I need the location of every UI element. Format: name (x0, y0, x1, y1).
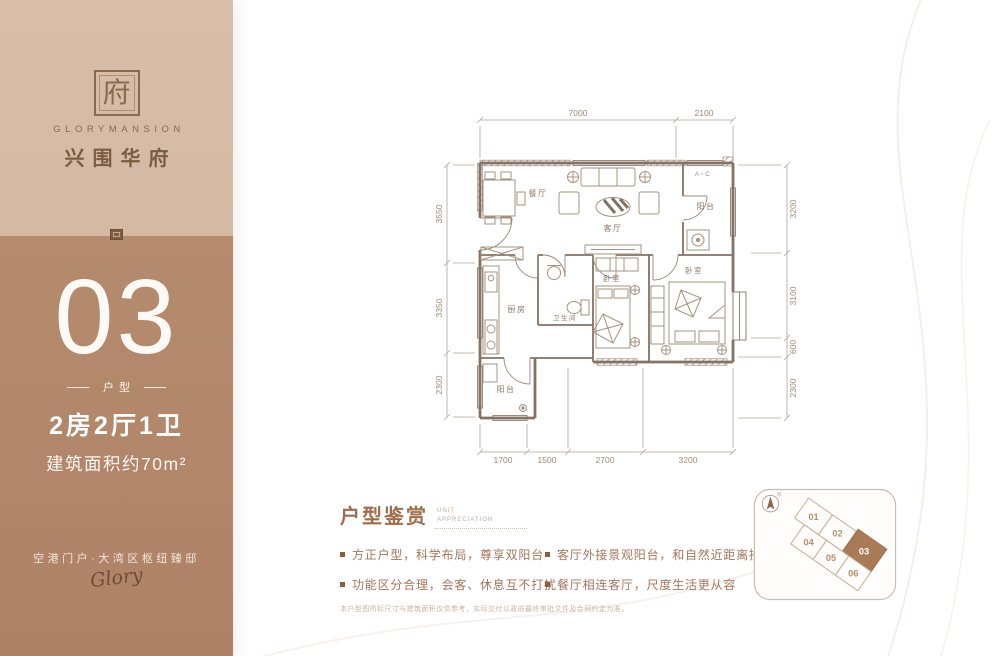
selling-points: 方正户型，科学布局，尊享双阳台 功能区分合理，会客、休息互不打扰 客厅外接景观阳… (340, 546, 775, 593)
keyplan-unit-label: 06 (848, 569, 858, 579)
dining-furniture (481, 172, 525, 260)
bullet-marker-icon (340, 552, 345, 557)
label-ac-unit: A~C (695, 172, 711, 178)
balcony-top-furniture (687, 230, 709, 250)
brand-name-cn: 兴围华府 (0, 142, 233, 171)
subtitle-line2: APPRECIATION (437, 516, 493, 525)
bedroom-small-furniture (593, 258, 640, 348)
dim-top-7000: 7000 (569, 108, 588, 118)
appreciation-header: 户型鉴赏 UNIT APPRECIATION (340, 500, 775, 529)
keyplan-unit-label: 02 (832, 529, 842, 539)
bullet-marker-icon (545, 582, 550, 587)
bullet-text: 功能区分合理，会客、休息互不打扰 (352, 576, 557, 593)
seal-mark-icon (110, 229, 123, 240)
floorplan: 7000 2100 3550 3350 2300 3200 3100 600 2… (435, 100, 815, 480)
dim-right-2300: 2300 (788, 378, 798, 397)
dim-right-3200: 3200 (788, 199, 798, 218)
label-living: 客厅 (604, 223, 623, 233)
bullet-list-right: 客厅外接景观阳台，和自然近距离接触 餐厅相连客厅，尺度生活更从容 (545, 546, 775, 593)
dim-left-3350: 3350 (435, 298, 444, 317)
brand-seal-icon: 府 (94, 70, 140, 116)
section-title: 户型鉴赏 (340, 500, 428, 529)
unit-area: 建筑面积约70m² (0, 451, 233, 476)
label-bathroom: 卫生间 (553, 313, 577, 322)
dim-bottom-3200: 3200 (679, 455, 698, 465)
keyplan-unit-label: 04 (804, 537, 815, 547)
living-furniture (559, 168, 659, 254)
label-balcony-bottom: 阳台 (497, 384, 516, 394)
bullet-marker-icon (545, 552, 550, 557)
disclaimer-text: 本户型图所标尺寸与建筑面积仅供参考，实际交付以政府最终审批文件及合同约定为准。 (340, 604, 629, 614)
unit-panel: 03 户型 2房2厅1卫 建筑面积约70m² 空港门户·大湾区枢纽臻邸 Glor… (0, 236, 233, 656)
bullet-item: 客厅外接景观阳台，和自然近距离接触 (545, 546, 775, 563)
keyplan-unit-label: 05 (826, 553, 836, 563)
bullet-item: 功能区分合理，会客、休息互不打扰 (340, 576, 545, 593)
brand-seal-glyph: 府 (102, 79, 130, 107)
unit-type-label: 户型 (98, 379, 135, 395)
subtitle-line1: UNIT (437, 507, 493, 516)
bullet-text: 客厅外接景观阳台，和自然近距离接触 (557, 546, 775, 563)
bullet-item: 餐厅相连客厅，尺度生活更从容 (545, 576, 775, 593)
bedroom-master-furniture (651, 282, 727, 355)
keyplan-unit-label: 01 (808, 512, 818, 522)
bullet-text: 餐厅相连客厅，尺度生活更从容 (557, 576, 736, 593)
dim-top-2100: 2100 (695, 108, 714, 118)
keyplan-unit-label-highlighted: 03 (859, 547, 869, 557)
keyplan: N 01 02 03 04 05 06 (752, 487, 898, 602)
unit-type-divider: 户型 (0, 379, 233, 395)
dim-bottom-2700: 2700 (596, 455, 615, 465)
label-balcony-top: 阳台 (697, 201, 716, 211)
label-kitchen: 厨房 (508, 304, 527, 314)
bullet-marker-icon (340, 582, 345, 587)
unit-number: 03 (0, 236, 233, 370)
unit-layout: 2房2厅1卫 (0, 406, 233, 442)
bathroom-fixtures (547, 266, 589, 316)
kitchen-furniture (483, 266, 499, 354)
label-dining: 餐厅 (529, 189, 548, 198)
appreciation-section: 户型鉴赏 UNIT APPRECIATION 方正户型，科学布局，尊享双阳台 功… (340, 500, 775, 593)
brochure-page: 府 GLORYMANSION 兴围华府 03 户型 2房2厅1卫 建筑面积约70… (0, 0, 1000, 656)
north-label: N (777, 492, 781, 498)
divider-line-left (67, 387, 89, 388)
bullet-item: 方正户型，科学布局，尊享双阳台 (340, 546, 545, 563)
label-bedroom-master: 卧室 (685, 265, 703, 275)
dim-left-2300: 2300 (435, 375, 444, 394)
dim-left-3550: 3550 (435, 204, 444, 223)
dim-right-600: 600 (788, 340, 798, 354)
dim-right-3100: 3100 (788, 286, 798, 305)
sidebar: 府 GLORYMANSION 兴围华府 03 户型 2房2厅1卫 建筑面积约70… (0, 0, 233, 656)
brand-panel: 府 GLORYMANSION 兴围华府 (0, 0, 233, 236)
bullet-text: 方正户型，科学布局，尊享双阳台 (352, 546, 544, 563)
dim-bottom-1500: 1500 (538, 455, 557, 465)
section-subtitle: UNIT APPRECIATION (435, 507, 527, 529)
dim-bottom-1700: 1700 (494, 455, 513, 465)
brand-name-en: GLORYMANSION (0, 124, 233, 135)
bullet-list-left: 方正户型，科学布局，尊享双阳台 功能区分合理，会客、休息互不打扰 (340, 546, 545, 593)
divider-line-right (144, 387, 166, 388)
furniture (481, 168, 727, 412)
label-bedroom-small: 卧室 (603, 273, 621, 283)
